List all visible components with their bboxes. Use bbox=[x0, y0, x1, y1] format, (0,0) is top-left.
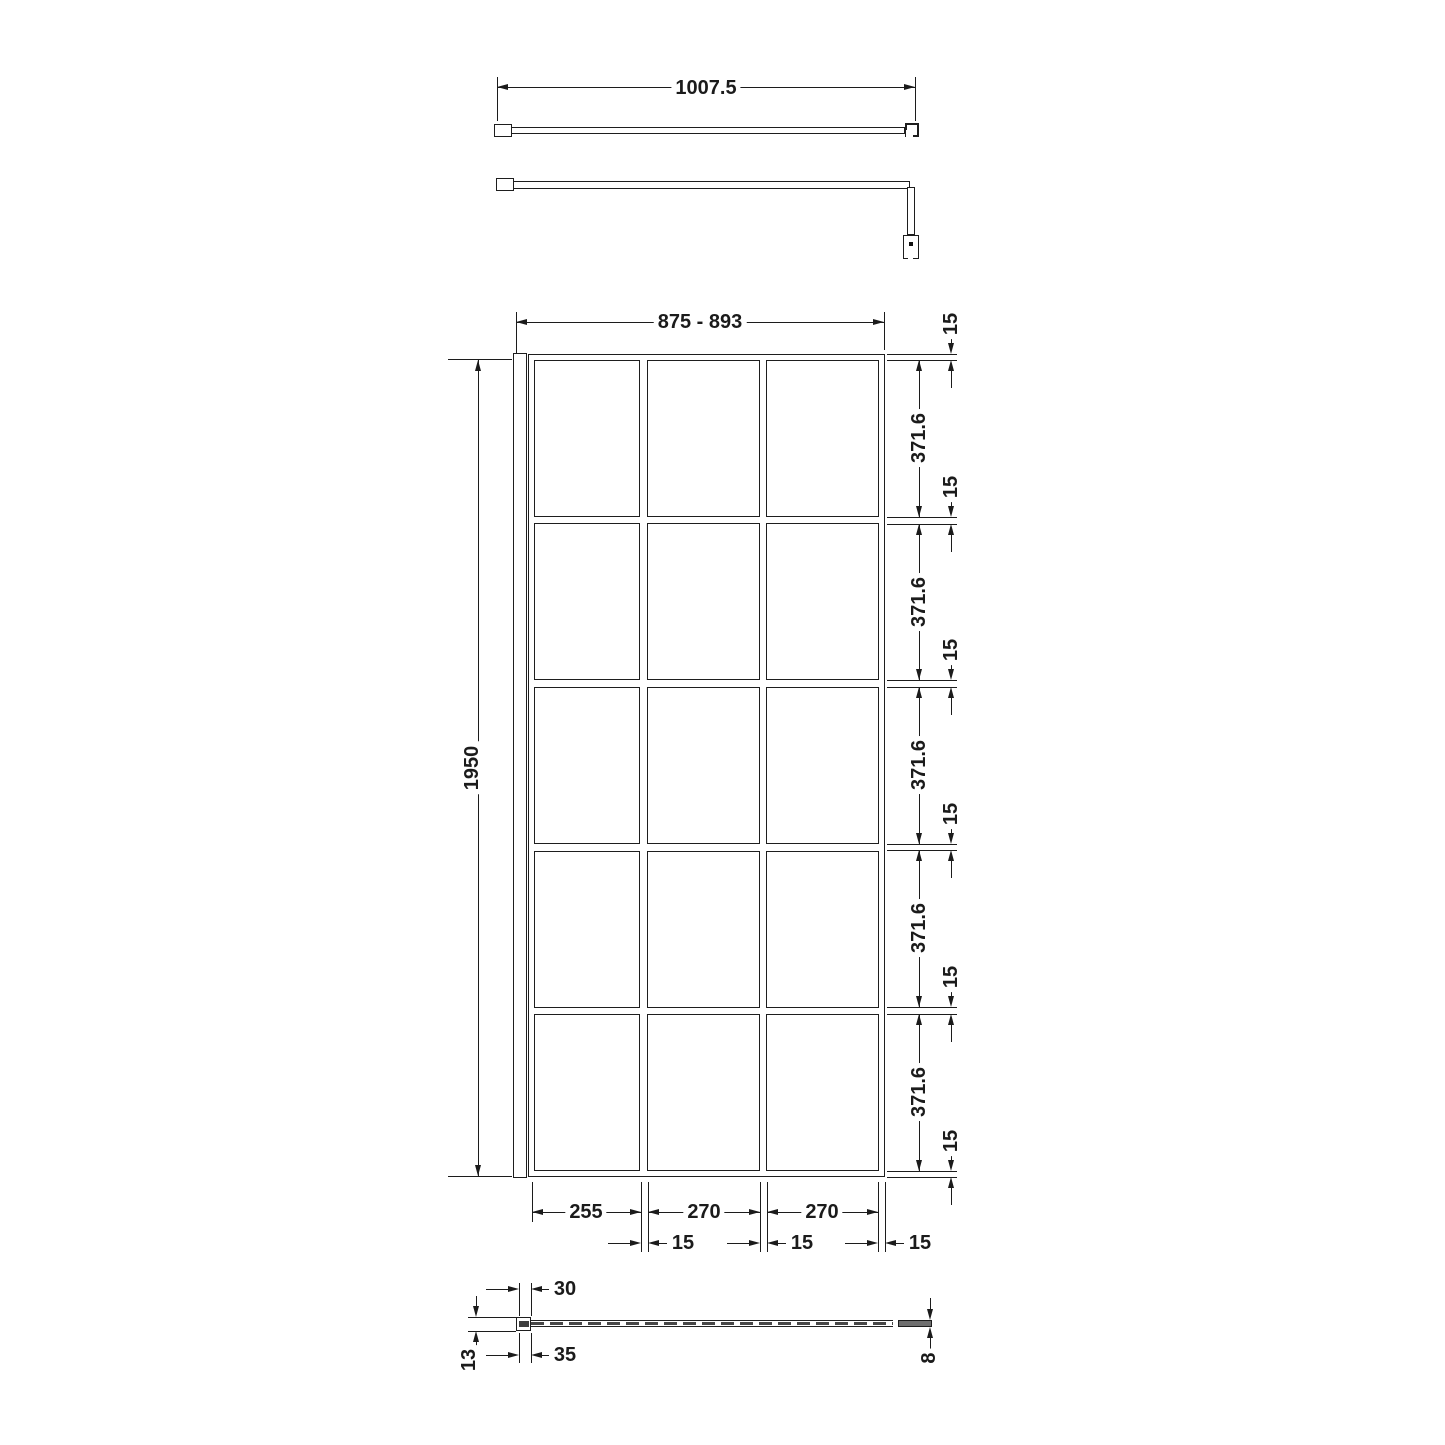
dim-extension-line bbox=[887, 1171, 957, 1172]
dim-line bbox=[659, 1243, 667, 1244]
dim-label-channel-inner: 30 bbox=[550, 1279, 580, 1299]
dim-line bbox=[476, 1296, 477, 1306]
dim-arrow bbox=[948, 343, 954, 354]
dim-label-opening-4: 371.6 bbox=[909, 899, 929, 957]
glass-pane bbox=[647, 687, 760, 844]
dim-arrow bbox=[916, 833, 922, 844]
dim-label-mullion-1: 15 bbox=[668, 1233, 698, 1253]
glass-pane bbox=[766, 1014, 879, 1171]
dim-label-col-3: 270 bbox=[801, 1202, 842, 1222]
dim-label-panel-height: 1950 bbox=[462, 742, 482, 795]
dim-label-opening-5: 371.6 bbox=[909, 1063, 929, 1121]
dim-line bbox=[951, 371, 952, 388]
dim-arrow bbox=[948, 360, 954, 371]
dim-label-col-1: 255 bbox=[565, 1202, 606, 1222]
wall-channel-profile bbox=[513, 353, 527, 1178]
dim-arrow bbox=[948, 833, 954, 844]
dim-arrow bbox=[948, 850, 954, 861]
clamp-slot bbox=[908, 250, 913, 260]
glass-pane bbox=[534, 1014, 641, 1171]
arm-bar bbox=[513, 181, 910, 189]
dim-line bbox=[930, 1298, 931, 1309]
dim-label-opening-2: 371.6 bbox=[909, 573, 929, 631]
dim-extension-line bbox=[887, 844, 957, 845]
dim-line bbox=[486, 1289, 508, 1290]
dim-arrow bbox=[749, 1240, 760, 1246]
dim-arrow bbox=[948, 1177, 954, 1188]
arm-wall-bracket bbox=[496, 178, 514, 191]
dim-arrow bbox=[867, 1240, 878, 1246]
dim-extension-line bbox=[887, 1007, 957, 1008]
dim-arrow bbox=[867, 1209, 878, 1215]
dim-arrow bbox=[531, 1352, 542, 1358]
dim-extension-line bbox=[884, 312, 885, 350]
dim-arrow bbox=[916, 669, 922, 680]
dim-label-wall-depth: 13 bbox=[459, 1345, 479, 1375]
glass-pane bbox=[647, 523, 760, 680]
dim-line bbox=[896, 1243, 904, 1244]
dim-arrow bbox=[630, 1209, 641, 1215]
arm-wall-bracket bbox=[494, 124, 512, 137]
dim-arrow bbox=[948, 1014, 954, 1025]
dim-arrow bbox=[475, 360, 481, 371]
dim-line bbox=[778, 1243, 786, 1244]
dim-label-channel-outer: 35 bbox=[550, 1345, 580, 1365]
dim-line bbox=[951, 861, 952, 878]
dim-extension-line bbox=[878, 1182, 879, 1252]
dim-arrow bbox=[885, 1240, 896, 1246]
dim-arrow bbox=[508, 1286, 519, 1292]
dim-arrow bbox=[475, 1165, 481, 1176]
dim-arrow bbox=[948, 506, 954, 517]
dim-extension-line bbox=[531, 1333, 532, 1363]
dim-line bbox=[951, 698, 952, 715]
arm-clamp-notch bbox=[906, 130, 913, 137]
dim-extension-line bbox=[468, 1317, 516, 1318]
dim-extension-line bbox=[532, 1182, 533, 1222]
dim-arrow bbox=[904, 84, 915, 90]
dim-label-frame-1: 15 bbox=[941, 309, 961, 339]
dim-arrow bbox=[916, 524, 922, 535]
dim-extension-line bbox=[641, 1182, 642, 1252]
glass-pane bbox=[534, 687, 641, 844]
dim-arrow bbox=[948, 687, 954, 698]
dim-arrow bbox=[916, 1014, 922, 1025]
dim-arrow bbox=[516, 319, 527, 325]
dim-arrow bbox=[927, 1309, 933, 1320]
dim-arrow bbox=[648, 1209, 659, 1215]
dim-extension-line bbox=[887, 1177, 957, 1178]
arm-bar-drop bbox=[907, 187, 915, 235]
dim-label-frame-4: 15 bbox=[941, 799, 961, 829]
dim-arrow bbox=[532, 1209, 543, 1215]
glass-pane bbox=[534, 360, 641, 517]
dim-line bbox=[951, 1188, 952, 1205]
dim-line bbox=[951, 535, 952, 552]
dim-label-frame-3: 15 bbox=[941, 635, 961, 665]
dim-arrow bbox=[948, 524, 954, 535]
dim-extension-line bbox=[887, 360, 957, 361]
dim-extension-line bbox=[915, 77, 916, 121]
dim-arrow bbox=[948, 996, 954, 1007]
dim-line bbox=[727, 1243, 749, 1244]
dim-arrow bbox=[916, 1160, 922, 1171]
glass-pane bbox=[766, 687, 879, 844]
dim-arrow bbox=[531, 1286, 542, 1292]
dim-label-frame-2: 15 bbox=[941, 472, 961, 502]
dim-arrow bbox=[948, 669, 954, 680]
dim-arrow bbox=[473, 1331, 479, 1342]
dim-label-mullion-3: 15 bbox=[905, 1233, 935, 1253]
dim-line bbox=[608, 1243, 630, 1244]
dim-label-frame-5: 15 bbox=[941, 962, 961, 992]
dim-line bbox=[845, 1243, 867, 1244]
dim-label-glass-thickness: 8 bbox=[919, 1348, 939, 1367]
glass-pane bbox=[766, 523, 879, 680]
dim-arrow bbox=[473, 1306, 479, 1317]
glass-pane bbox=[647, 851, 760, 1008]
dim-label-opening-3: 371.6 bbox=[909, 736, 929, 794]
glass-pane bbox=[766, 360, 879, 517]
dim-extension-line bbox=[448, 1176, 512, 1177]
dim-label-frame-6: 15 bbox=[941, 1126, 961, 1156]
dim-arrow bbox=[630, 1240, 641, 1246]
dim-extension-line bbox=[887, 680, 957, 681]
dim-extension-line bbox=[519, 1283, 520, 1316]
clamp-screw-dot bbox=[909, 242, 913, 246]
dim-extension-line bbox=[519, 1333, 520, 1363]
glass-pane bbox=[534, 523, 641, 680]
dim-extension-line bbox=[887, 687, 957, 688]
glass-panel-section bbox=[531, 1320, 893, 1327]
dim-label-arm-length: 1007.5 bbox=[671, 78, 740, 98]
arm-bar bbox=[511, 127, 905, 134]
dim-label-mullion-2: 15 bbox=[787, 1233, 817, 1253]
screen-frame bbox=[528, 354, 885, 1177]
glass-in-channel bbox=[519, 1321, 529, 1327]
glass-pane bbox=[647, 360, 760, 517]
dim-extension-line bbox=[887, 517, 957, 518]
glass-pane bbox=[766, 851, 879, 1008]
dim-arrow bbox=[927, 1327, 933, 1338]
dim-line bbox=[542, 1355, 549, 1356]
dim-arrow bbox=[916, 850, 922, 861]
dim-arrow bbox=[767, 1209, 778, 1215]
dim-label-opening-1: 371.6 bbox=[909, 409, 929, 467]
dim-arrow bbox=[648, 1240, 659, 1246]
dim-arrow bbox=[916, 360, 922, 371]
dim-arrow bbox=[497, 84, 508, 90]
dim-extension-line bbox=[887, 354, 957, 355]
glass-pane bbox=[534, 851, 641, 1008]
dim-arrow bbox=[749, 1209, 760, 1215]
dim-arrow bbox=[916, 996, 922, 1007]
dim-line bbox=[486, 1355, 508, 1356]
dim-extension-line bbox=[887, 850, 957, 851]
dim-extension-line bbox=[887, 1014, 957, 1015]
dim-arrow bbox=[948, 1160, 954, 1171]
dim-arrow bbox=[873, 319, 884, 325]
dim-extension-line bbox=[887, 524, 957, 525]
dim-line bbox=[542, 1289, 549, 1290]
dim-arrow bbox=[508, 1352, 519, 1358]
dim-arrow bbox=[916, 687, 922, 698]
glass-pane bbox=[647, 1014, 760, 1171]
dim-extension-line bbox=[760, 1182, 761, 1252]
dim-line bbox=[951, 1025, 952, 1042]
dim-label-col-2: 270 bbox=[683, 1202, 724, 1222]
technical-drawing-canvas: 1007.5 875 - 893 bbox=[0, 0, 1445, 1445]
dim-arrow bbox=[916, 506, 922, 517]
support-arm-section bbox=[898, 1320, 932, 1327]
dim-arrow bbox=[767, 1240, 778, 1246]
dim-label-panel-width: 875 - 893 bbox=[654, 312, 747, 332]
